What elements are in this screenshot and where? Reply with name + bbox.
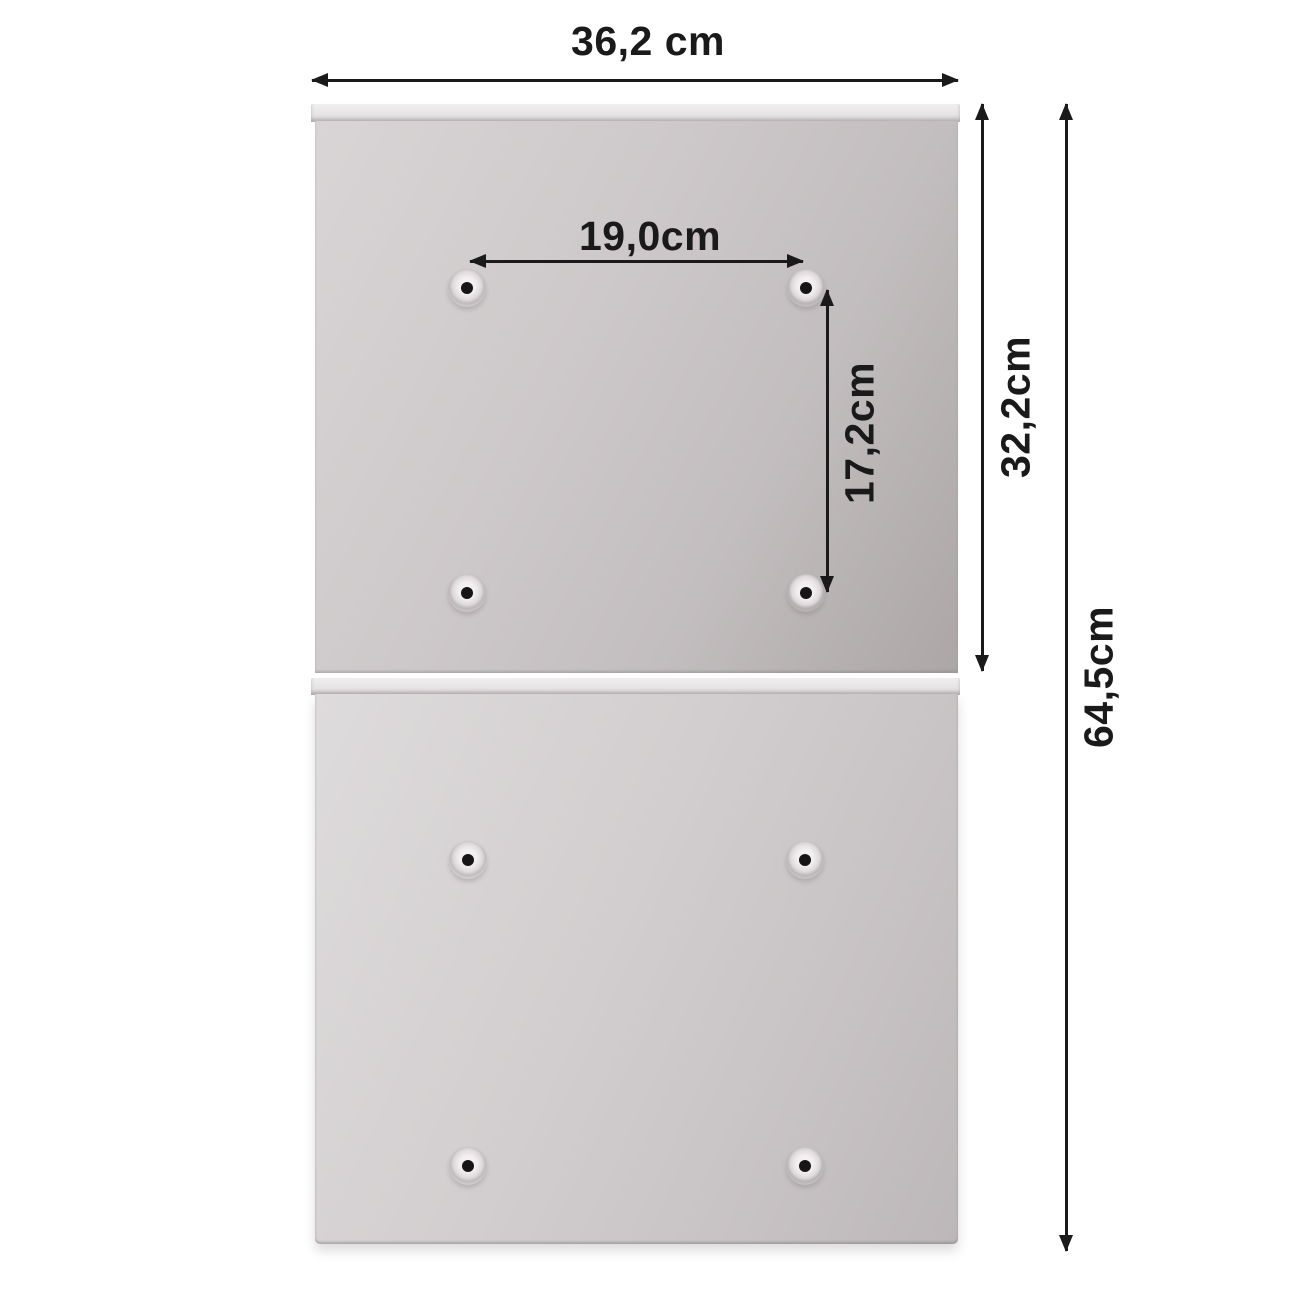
screw-hole [448, 574, 486, 612]
overall-height-label: 64,5cm [1076, 606, 1123, 748]
hole-spacing-vertical-label: 17,2cm [837, 362, 884, 504]
overall-height-arrow [1065, 104, 1068, 1251]
screw-hole [449, 1147, 487, 1185]
screw-hole [786, 1147, 824, 1185]
hole-spacing-vertical-arrow [826, 290, 829, 592]
hole-spacing-horizontal-label: 19,0cm [579, 213, 721, 260]
hole-spacing-horizontal-arrow [470, 260, 803, 263]
overall-width-arrow [312, 79, 958, 82]
top-panel-lip [311, 104, 960, 122]
top-panel-height-arrow [981, 104, 984, 671]
screw-hole [449, 841, 487, 879]
screw-hole [786, 841, 824, 879]
cabinet-dimension-diagram: 36,2 cm 19,0cm 17,2cm 32,2cm 64,5cm [0, 0, 1300, 1300]
bottom-panel [315, 694, 958, 1244]
screw-hole [448, 269, 486, 307]
top-panel-height-label: 32,2cm [993, 336, 1040, 478]
overall-width-label: 36,2 cm [571, 18, 725, 65]
bottom-panel-lip [311, 678, 960, 695]
